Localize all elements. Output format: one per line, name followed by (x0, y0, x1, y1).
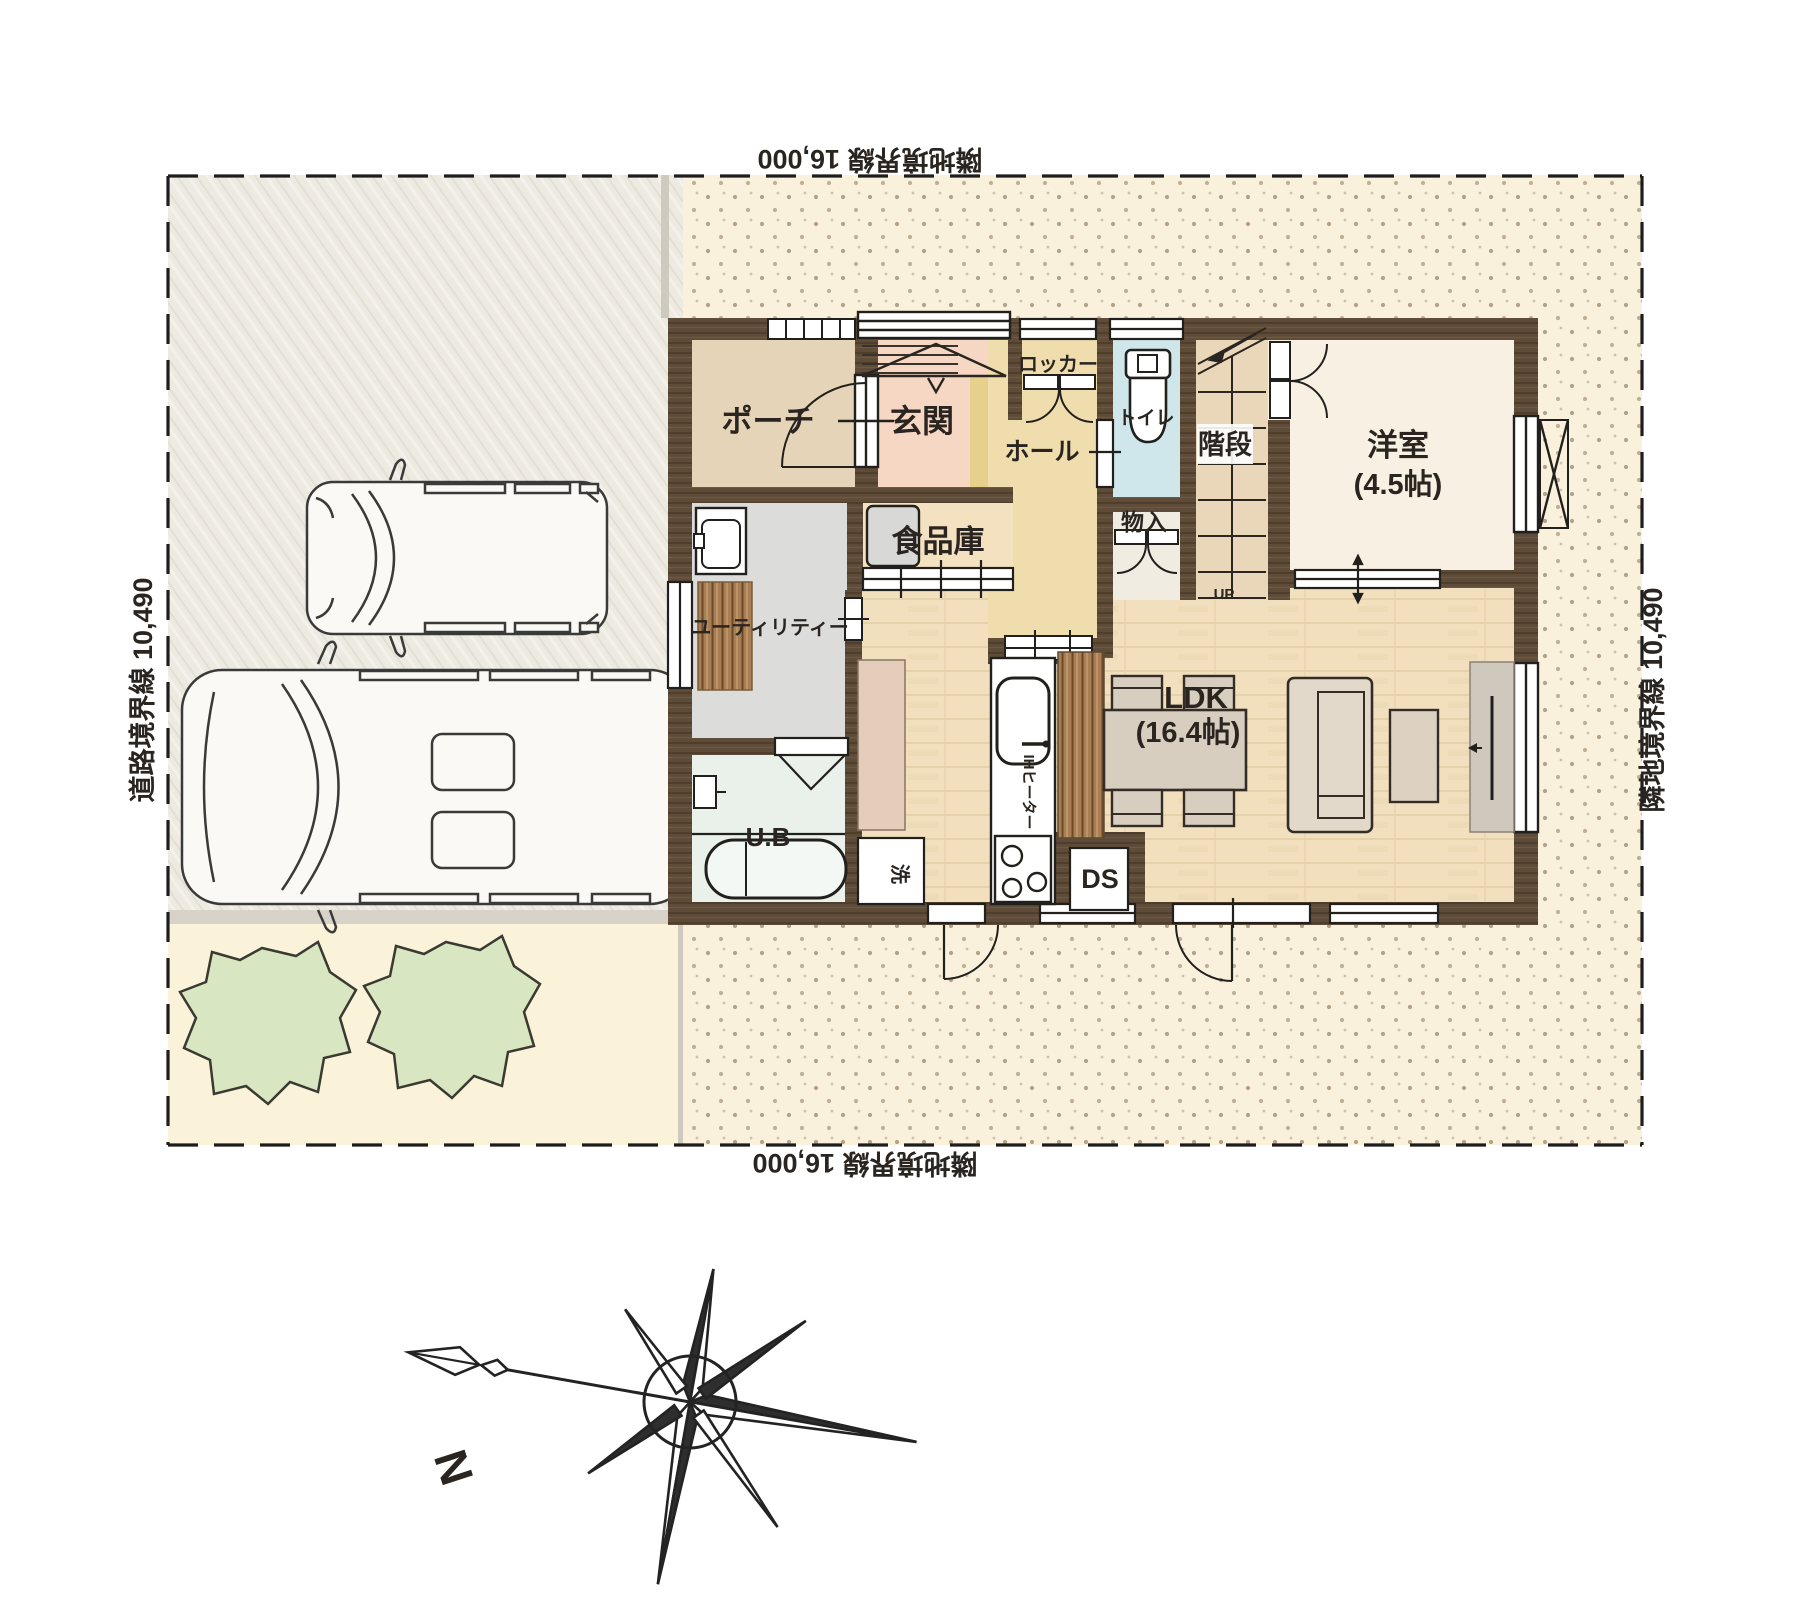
boundary-label-top: 隣地境界線 16,000 (757, 144, 982, 175)
entrance-window (858, 312, 1010, 338)
wall-entrance-south (692, 487, 1013, 503)
wall-stairs-west-room-b (1268, 420, 1290, 600)
laundry-label: 洗 (888, 864, 911, 884)
western-room-size-label: (4.5帖) (1354, 468, 1443, 501)
wall-stairs-west-room-a (1268, 318, 1290, 337)
floor-plan-svg: ポーチ 玄関 ホール ロッカー トイレ 階段 UP 物入 洋室 (4.5帖) 食… (0, 0, 1798, 1612)
porch-label: ポーチ (722, 404, 815, 439)
porch-lattice-window (768, 319, 855, 339)
unit-bath-label: U.B (746, 822, 791, 852)
ldk-size-label: (16.4帖) (1136, 716, 1241, 749)
compass-rose: N (376, 1219, 940, 1612)
entrance-label: 玄関 (890, 403, 954, 439)
utility-label: ユーティリティー (691, 617, 849, 639)
kitchen-slat-counter (1058, 652, 1104, 838)
wall-hall-toilet-b (1097, 487, 1113, 658)
pantry-label: 食品庫 (892, 524, 985, 559)
tv-board (1468, 662, 1514, 832)
locker-label: ロッカー (1018, 354, 1098, 376)
wall-bath-right-a (845, 590, 862, 598)
driveway-lot-divider-top (661, 175, 669, 318)
car-sedan (182, 642, 690, 933)
wall-pantry-left (847, 503, 863, 590)
toilet-label: トイレ (1117, 408, 1174, 429)
locker-window (1020, 319, 1096, 339)
boundary-label-left: 道路境界線 10,490 (127, 577, 158, 802)
ih-heater-label: IHヒーター (1020, 754, 1037, 829)
boundary-label-bottom: 隣地境界線 16,000 (752, 1148, 977, 1179)
wall-locker-left (1008, 340, 1022, 420)
sofa (1288, 678, 1372, 832)
wall-toilet-stairs (1180, 318, 1196, 600)
hall-label: ホール (1004, 438, 1079, 466)
boundary-label-right: 隣地境界線 10,490 (1637, 587, 1668, 812)
western-room-label: 洋室 (1367, 428, 1429, 463)
ldk-south-window-b (1330, 904, 1438, 923)
storage-label: 物入 (1121, 509, 1167, 535)
entrance-step (970, 375, 988, 487)
washbasin (694, 508, 746, 574)
wall-east (1514, 318, 1538, 925)
ldk-label: LDK (1164, 680, 1228, 715)
utility-west-window (668, 582, 692, 688)
compass-north-label: N (424, 1444, 484, 1492)
floor-plan-page: ポーチ 玄関 ホール ロッカー トイレ 階段 UP 物入 洋室 (4.5帖) 食… (0, 0, 1798, 1612)
kitchen-back-cabinet (858, 660, 905, 830)
car-kei-van (307, 460, 607, 657)
stairs-label: 階段 (1198, 430, 1252, 460)
stairs-up-label: UP (1214, 586, 1235, 603)
driveway-garden-divider (168, 910, 683, 924)
toilet-window (1110, 319, 1183, 339)
garden-lot-divider (678, 924, 683, 1145)
wall-porch-entrance-b (855, 467, 878, 487)
wall-utility-bath-a (692, 738, 775, 755)
coffee-table (1390, 710, 1438, 802)
duct-space-label: DS (1081, 864, 1119, 894)
